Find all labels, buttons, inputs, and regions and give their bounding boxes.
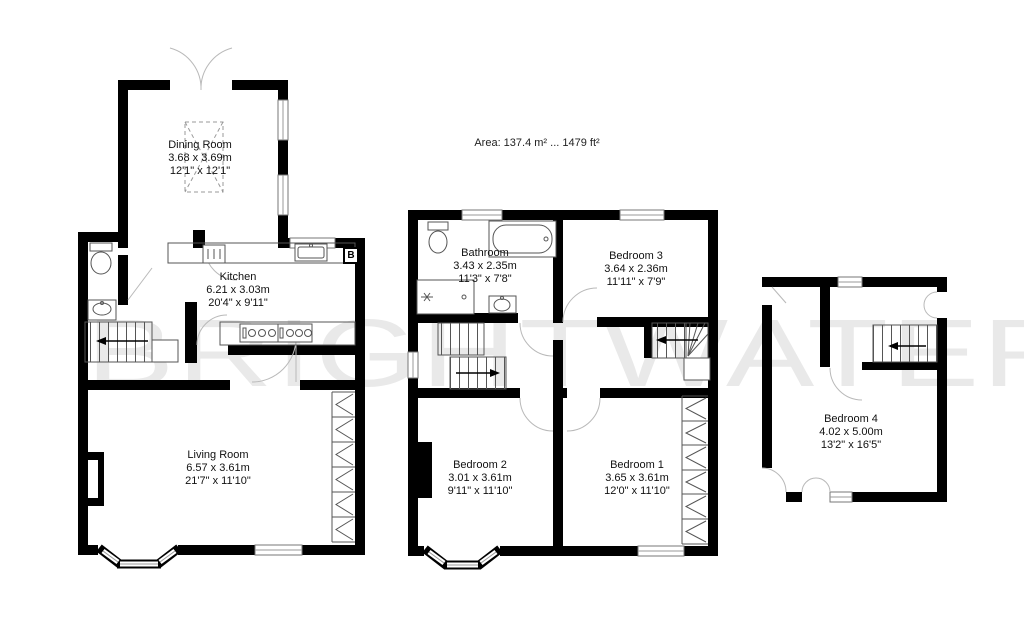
second-floor-walls <box>762 277 947 502</box>
shower-icon <box>417 280 474 314</box>
living-wardrobe-icon <box>332 392 355 542</box>
bedroom1-wardrobe-icon <box>682 396 708 544</box>
toilet-icon <box>90 243 112 274</box>
skylight-marker <box>185 122 223 192</box>
bay-window <box>425 549 500 566</box>
first-floor-plan <box>408 210 718 566</box>
second-floor-plan <box>762 277 947 502</box>
bay-window <box>99 548 179 565</box>
second-floor-doors <box>762 287 937 492</box>
floorplan-canvas: BRIGHTWATER <box>0 0 1024 632</box>
bath-icon <box>489 221 556 257</box>
hob-icon <box>240 324 312 342</box>
kitchen-sink-icon <box>295 244 327 261</box>
landing-stairs <box>438 323 506 389</box>
ground-floor-plan <box>78 48 365 565</box>
stairs-to-second-floor <box>652 323 710 380</box>
french-doors-icon <box>170 48 232 90</box>
second-floor-stairs <box>873 325 937 362</box>
appliance-icon <box>203 245 225 263</box>
second-floor-windows <box>830 277 862 502</box>
ground-floor-walls <box>78 80 365 555</box>
first-floor-windows <box>408 210 684 556</box>
toilet-icon <box>428 222 448 253</box>
sink-icon <box>88 300 116 320</box>
ground-stairs <box>85 322 178 362</box>
boiler-label: B <box>343 247 359 264</box>
fireplace-icon <box>88 452 104 506</box>
sink-icon <box>489 296 516 313</box>
floorplan-linework <box>0 0 1024 632</box>
